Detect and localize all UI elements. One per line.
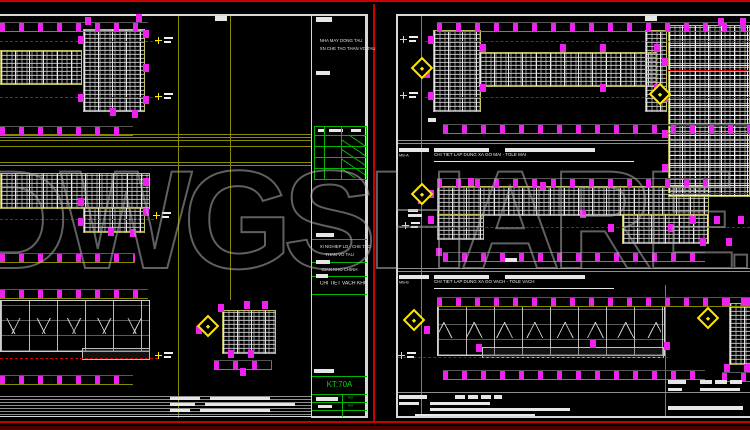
truss-band — [439, 322, 661, 338]
hatched-panel — [222, 310, 276, 354]
right-title2-label: MB-B — [399, 281, 409, 285]
section-line — [312, 294, 367, 295]
datum-symbol-icon — [153, 210, 173, 222]
magenta-marker — [724, 298, 730, 306]
section-long-line — [398, 268, 750, 269]
outer-border-top — [0, 0, 750, 2]
hatched-panel — [0, 50, 82, 85]
centerline — [0, 219, 154, 220]
magenta-marker — [476, 344, 482, 352]
text-bar — [700, 388, 740, 391]
text-bar — [428, 118, 436, 122]
text-bar — [715, 380, 727, 384]
magenta-marker — [654, 44, 660, 52]
magenta-marker — [580, 210, 586, 218]
hatched-panel — [433, 30, 481, 112]
text-bar — [316, 17, 332, 22]
sheet-border — [397, 14, 750, 16]
text-bar — [215, 16, 227, 21]
bottom-maroon-band — [0, 426, 750, 430]
text-bar — [468, 395, 478, 399]
magenta-marker — [424, 326, 430, 334]
centerline — [0, 358, 158, 359]
marker-strip — [443, 252, 705, 262]
text-bar — [399, 148, 429, 152]
text-bar — [434, 161, 634, 162]
magenta-marker — [600, 84, 606, 92]
magenta-marker — [664, 342, 670, 350]
text-bar — [505, 258, 517, 262]
magenta-marker — [590, 340, 596, 348]
text-bar — [316, 397, 338, 401]
text-bar — [399, 395, 427, 399]
text-bar — [668, 406, 743, 410]
text-bar — [399, 402, 419, 405]
magenta-marker — [228, 350, 234, 358]
magenta-marker — [78, 198, 84, 206]
magenta-marker — [428, 36, 434, 44]
sheet-divider — [373, 4, 375, 421]
magenta-marker — [608, 224, 614, 232]
right-title1-text: CHI TIET LAP DUNG XA GO MAI - TOLE MAI — [434, 153, 526, 158]
project-name: GIAN KHO CHINH — [320, 268, 360, 273]
magenta-marker — [744, 364, 750, 372]
magenta-marker — [130, 229, 136, 237]
title-block-header-1: NHA MAY DONG TAU — [320, 39, 360, 44]
construction-line — [178, 14, 179, 418]
text-bar — [481, 395, 491, 399]
section-long-line — [0, 414, 311, 415]
text-bar — [170, 403, 195, 406]
sheet-size: A3 — [348, 396, 353, 400]
centerline — [425, 97, 750, 98]
centerline — [400, 227, 750, 228]
magenta-marker — [240, 368, 246, 376]
centerline — [425, 41, 750, 42]
revision-diagonals — [342, 136, 365, 178]
section-long-line — [0, 162, 311, 163]
section-long-line — [398, 271, 750, 272]
magenta-marker — [143, 208, 149, 216]
left-title-block: NHA MAY DONG TAU XN CHE TAO THAN VO TAU … — [311, 14, 368, 418]
section-line — [312, 394, 367, 395]
magenta-marker — [85, 17, 91, 25]
magenta-marker — [560, 44, 566, 52]
text-bar — [645, 16, 657, 21]
magenta-marker — [662, 58, 668, 66]
magenta-marker — [428, 216, 434, 224]
text-bar — [408, 209, 418, 212]
marker-strip — [437, 297, 750, 307]
text-bar — [668, 380, 686, 384]
outer-border-bottom — [0, 421, 750, 423]
hatched-panel — [729, 303, 750, 365]
magenta-marker — [662, 130, 668, 138]
section-long-line — [0, 140, 311, 141]
text-bar — [455, 395, 465, 399]
cad-canvas: NHA MAY DONG TAU XN CHE TAO THAN VO TAU … — [0, 0, 750, 430]
datum-symbol-icon — [402, 220, 422, 232]
red-level-line — [668, 70, 748, 71]
magenta-marker — [132, 110, 138, 118]
magenta-marker — [78, 36, 84, 44]
text-bar — [316, 260, 330, 264]
marker-strip — [0, 22, 148, 32]
drawing-title: CHI TIET VACH KHO — [320, 281, 360, 287]
sheet-border — [397, 416, 750, 418]
revision-table — [314, 126, 367, 180]
right-title1-label: MB-A — [399, 154, 409, 158]
text-bar — [210, 397, 270, 400]
text-bar — [399, 275, 429, 279]
magenta-marker — [108, 228, 114, 236]
magenta-marker — [428, 92, 434, 100]
magenta-marker — [218, 304, 224, 312]
construction-line — [230, 14, 231, 300]
section-line — [312, 239, 367, 240]
table-line — [324, 127, 325, 179]
magenta-marker — [436, 248, 442, 256]
datum-symbol-icon — [155, 91, 175, 103]
text-bar — [316, 233, 334, 237]
company-line-1: XI NGHIEP LD - CHE TAO — [320, 245, 360, 250]
text-bar — [316, 71, 330, 75]
magenta-marker — [244, 301, 250, 309]
text-bar — [314, 369, 334, 373]
magenta-marker — [262, 301, 268, 309]
hatched-panel — [0, 173, 150, 209]
magenta-marker — [136, 14, 142, 22]
text-bar — [505, 275, 585, 279]
magenta-marker — [480, 84, 486, 92]
magenta-marker — [143, 178, 149, 186]
section-long-line — [0, 137, 311, 138]
right-title2-text: CHI TIET LAP DUNG XA GO VACH - TOLE VACH — [434, 280, 534, 285]
magenta-marker — [718, 18, 724, 26]
marker-strip — [0, 253, 135, 263]
text-bar — [351, 129, 361, 132]
datum-symbol-icon — [400, 90, 420, 102]
text-bar — [494, 395, 502, 399]
red-level-line — [668, 193, 748, 194]
magenta-marker — [78, 218, 84, 226]
magenta-marker — [690, 216, 696, 224]
drawing-number: KT:70A — [312, 380, 367, 389]
section-marker-icon — [411, 183, 434, 206]
table-line — [342, 394, 343, 417]
magenta-marker — [662, 164, 668, 172]
section-line — [312, 410, 367, 411]
magenta-marker — [724, 364, 730, 372]
centerline — [398, 357, 668, 358]
hatched-panel — [479, 52, 657, 87]
magenta-marker — [480, 44, 486, 52]
title-block-header-2: XN CHE TAO THAN VO TAU — [320, 47, 360, 52]
magenta-marker — [110, 108, 116, 116]
text-bar — [434, 275, 489, 279]
magenta-marker — [248, 350, 254, 358]
text-bar — [415, 414, 535, 416]
marker-strip — [443, 124, 750, 134]
marker-strip — [0, 126, 133, 136]
magenta-marker — [78, 94, 84, 102]
marker-strip — [0, 375, 133, 385]
magenta-marker — [143, 64, 149, 72]
text-bar — [730, 380, 742, 384]
text-bar — [200, 409, 270, 412]
text-bar — [505, 148, 595, 152]
datum-symbol-icon — [400, 34, 420, 46]
section-long-line — [0, 165, 311, 166]
magenta-marker — [744, 298, 750, 306]
text-bar — [316, 274, 328, 278]
section-line — [312, 402, 367, 403]
text-bar — [700, 380, 712, 384]
magenta-marker — [540, 182, 546, 190]
text-bar — [434, 288, 614, 289]
section-line — [312, 376, 367, 377]
datum-symbol-icon — [155, 35, 175, 47]
hatched-wall-panel — [668, 25, 750, 197]
text-bar — [408, 214, 422, 217]
magenta-marker — [600, 44, 606, 52]
magenta-marker — [738, 216, 744, 224]
magenta-marker — [143, 30, 149, 38]
text-bar — [430, 402, 490, 405]
text-bar — [170, 409, 190, 412]
magenta-marker — [668, 224, 674, 232]
text-bar — [205, 403, 295, 406]
magenta-marker — [700, 238, 706, 246]
marker-strip — [443, 370, 705, 380]
section-long-line — [0, 146, 311, 147]
section-long-line — [398, 392, 750, 393]
magenta-marker — [726, 238, 732, 246]
text-bar — [430, 408, 570, 411]
sheet-size: A3 — [348, 404, 353, 408]
datum-symbol-icon — [155, 350, 175, 362]
marker-strip — [437, 22, 750, 32]
text-bar — [318, 405, 332, 408]
magenta-marker — [714, 216, 720, 224]
company-line-2: THAN VO TAU — [320, 253, 360, 258]
magenta-marker — [468, 178, 474, 186]
text-bar — [668, 388, 682, 391]
marker-strip — [437, 178, 709, 188]
section-marker-icon — [697, 307, 720, 330]
text-bar — [170, 397, 200, 400]
marker-strip — [0, 289, 148, 299]
magenta-marker — [143, 96, 149, 104]
magenta-marker — [740, 18, 746, 26]
truss-band — [2, 318, 146, 334]
datum-symbol-icon — [398, 350, 418, 362]
text-bar — [434, 148, 489, 152]
